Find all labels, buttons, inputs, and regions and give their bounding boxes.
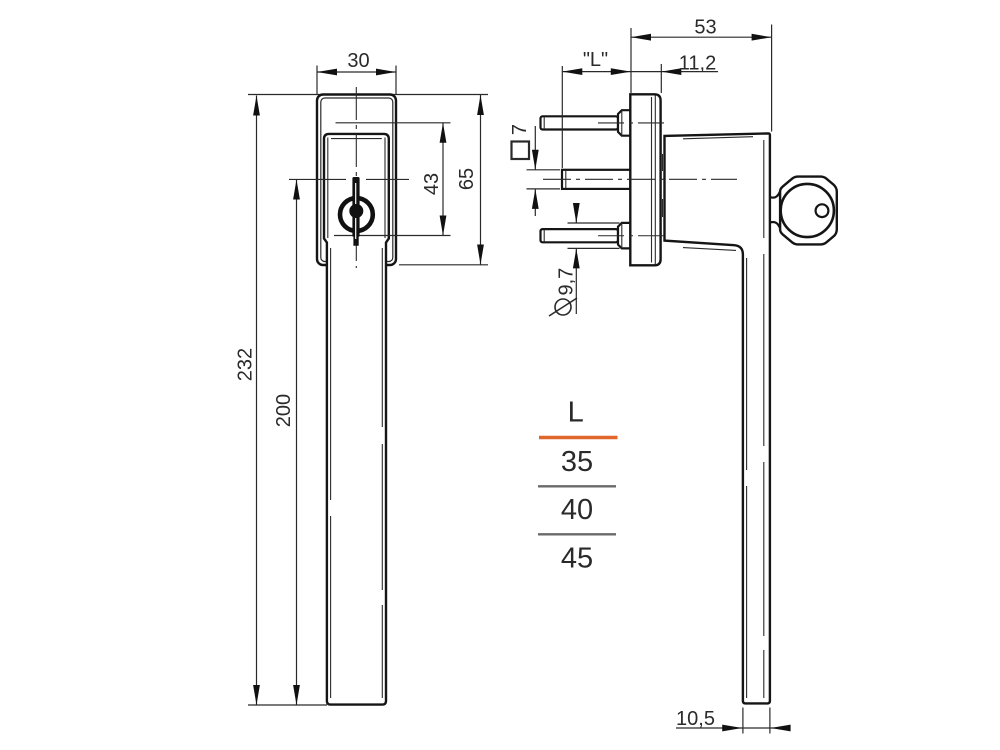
- svg-text:232: 232: [235, 348, 257, 381]
- svg-text:"L": "L": [583, 49, 608, 71]
- svg-text:200: 200: [273, 394, 295, 427]
- svg-text:65: 65: [456, 168, 478, 190]
- svg-text:53: 53: [694, 17, 716, 39]
- svg-text:7: 7: [509, 124, 531, 135]
- svg-text:11,2: 11,2: [679, 53, 716, 75]
- svg-text:45: 45: [561, 542, 593, 574]
- svg-text:L: L: [568, 397, 584, 429]
- svg-text:35: 35: [561, 446, 593, 478]
- svg-text:30: 30: [347, 50, 369, 72]
- svg-text:43: 43: [421, 173, 443, 195]
- svg-text:10,5: 10,5: [676, 708, 715, 730]
- svg-text:40: 40: [561, 494, 593, 526]
- svg-text:9,7: 9,7: [556, 268, 578, 296]
